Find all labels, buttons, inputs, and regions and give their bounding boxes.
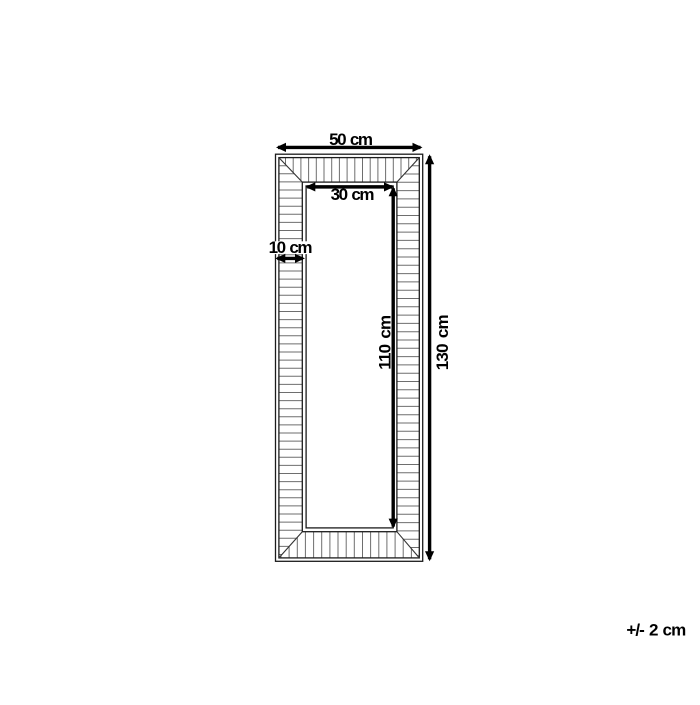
svg-text:+/- 2 cm: +/- 2 cm [626,621,686,640]
svg-text:30 cm: 30 cm [331,185,375,204]
svg-text:110 cm: 110 cm [376,315,395,370]
svg-text:50 cm: 50 cm [329,130,373,149]
svg-text:10 cm: 10 cm [269,238,313,257]
svg-text:130 cm: 130 cm [433,314,452,370]
